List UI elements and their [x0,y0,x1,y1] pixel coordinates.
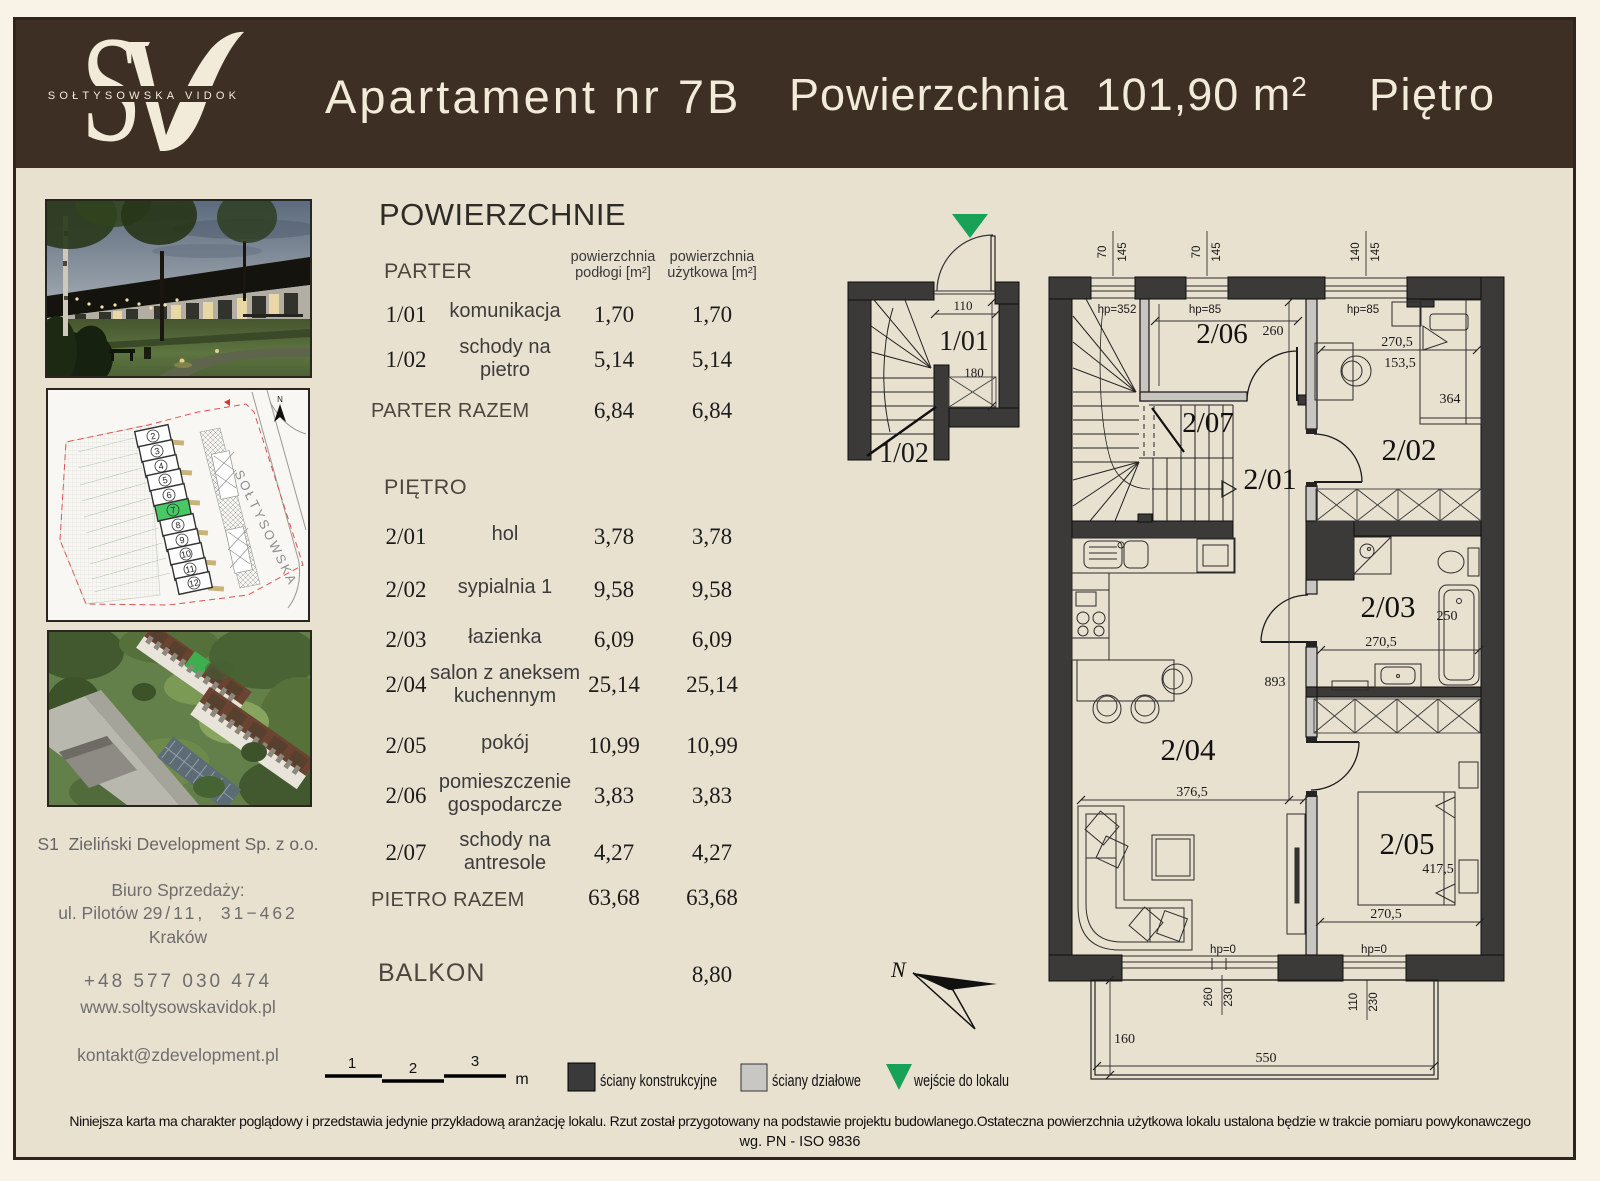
svg-text:ściany konstrukcyjne: ściany konstrukcyjne [600,1072,717,1090]
svg-text:160: 160 [1114,1032,1135,1047]
svg-text:hp=0: hp=0 [1361,944,1387,956]
svg-text:230: 230 [1223,987,1235,1006]
svg-text:140: 140 [1350,242,1362,261]
svg-text:70: 70 [1097,246,1109,259]
svg-text:2: 2 [409,1060,417,1077]
svg-text:270,5: 270,5 [1381,335,1413,350]
svg-text:417,5: 417,5 [1422,862,1454,877]
svg-text:145: 145 [1370,242,1382,261]
svg-text:893: 893 [1265,675,1286,690]
svg-text:153,5: 153,5 [1384,356,1416,371]
svg-text:260: 260 [1203,987,1215,1006]
svg-text:376,5: 376,5 [1176,785,1208,800]
svg-text:hp=85: hp=85 [1189,304,1221,316]
svg-text:70: 70 [1191,246,1203,259]
svg-text:2/06: 2/06 [1196,318,1248,350]
svg-text:hp=0: hp=0 [1210,944,1236,956]
svg-text:250: 250 [1437,609,1458,624]
svg-text:hp=85: hp=85 [1347,304,1379,316]
svg-text:270,5: 270,5 [1370,907,1402,922]
svg-text:2/04: 2/04 [1160,732,1216,767]
svg-text:364: 364 [1440,392,1461,407]
svg-text:110: 110 [953,298,972,313]
svg-text:145: 145 [1117,242,1129,261]
svg-text:110: 110 [1348,993,1360,1011]
svg-text:3: 3 [471,1053,479,1070]
svg-text:m: m [515,1071,528,1088]
svg-text:hp=352: hp=352 [1098,304,1137,316]
svg-text:180: 180 [964,365,984,380]
svg-text:wejście do lokalu: wejście do lokalu [913,1072,1009,1090]
svg-text:230: 230 [1368,992,1380,1011]
svg-text:2/03: 2/03 [1360,589,1415,624]
svg-text:N: N [890,957,907,982]
svg-text:145: 145 [1211,242,1223,261]
svg-text:270,5: 270,5 [1365,635,1397,650]
svg-text:2/05: 2/05 [1379,826,1434,861]
svg-text:2/07: 2/07 [1182,407,1234,439]
svg-text:2/01: 2/01 [1243,463,1296,496]
svg-text:ściany działowe: ściany działowe [772,1072,861,1090]
svg-text:2/02: 2/02 [1381,432,1436,467]
svg-text:260: 260 [1263,324,1284,339]
svg-text:1/01: 1/01 [939,326,989,357]
svg-text:1: 1 [348,1055,356,1072]
svg-text:550: 550 [1256,1051,1277,1066]
svg-text:1/02: 1/02 [879,438,929,469]
